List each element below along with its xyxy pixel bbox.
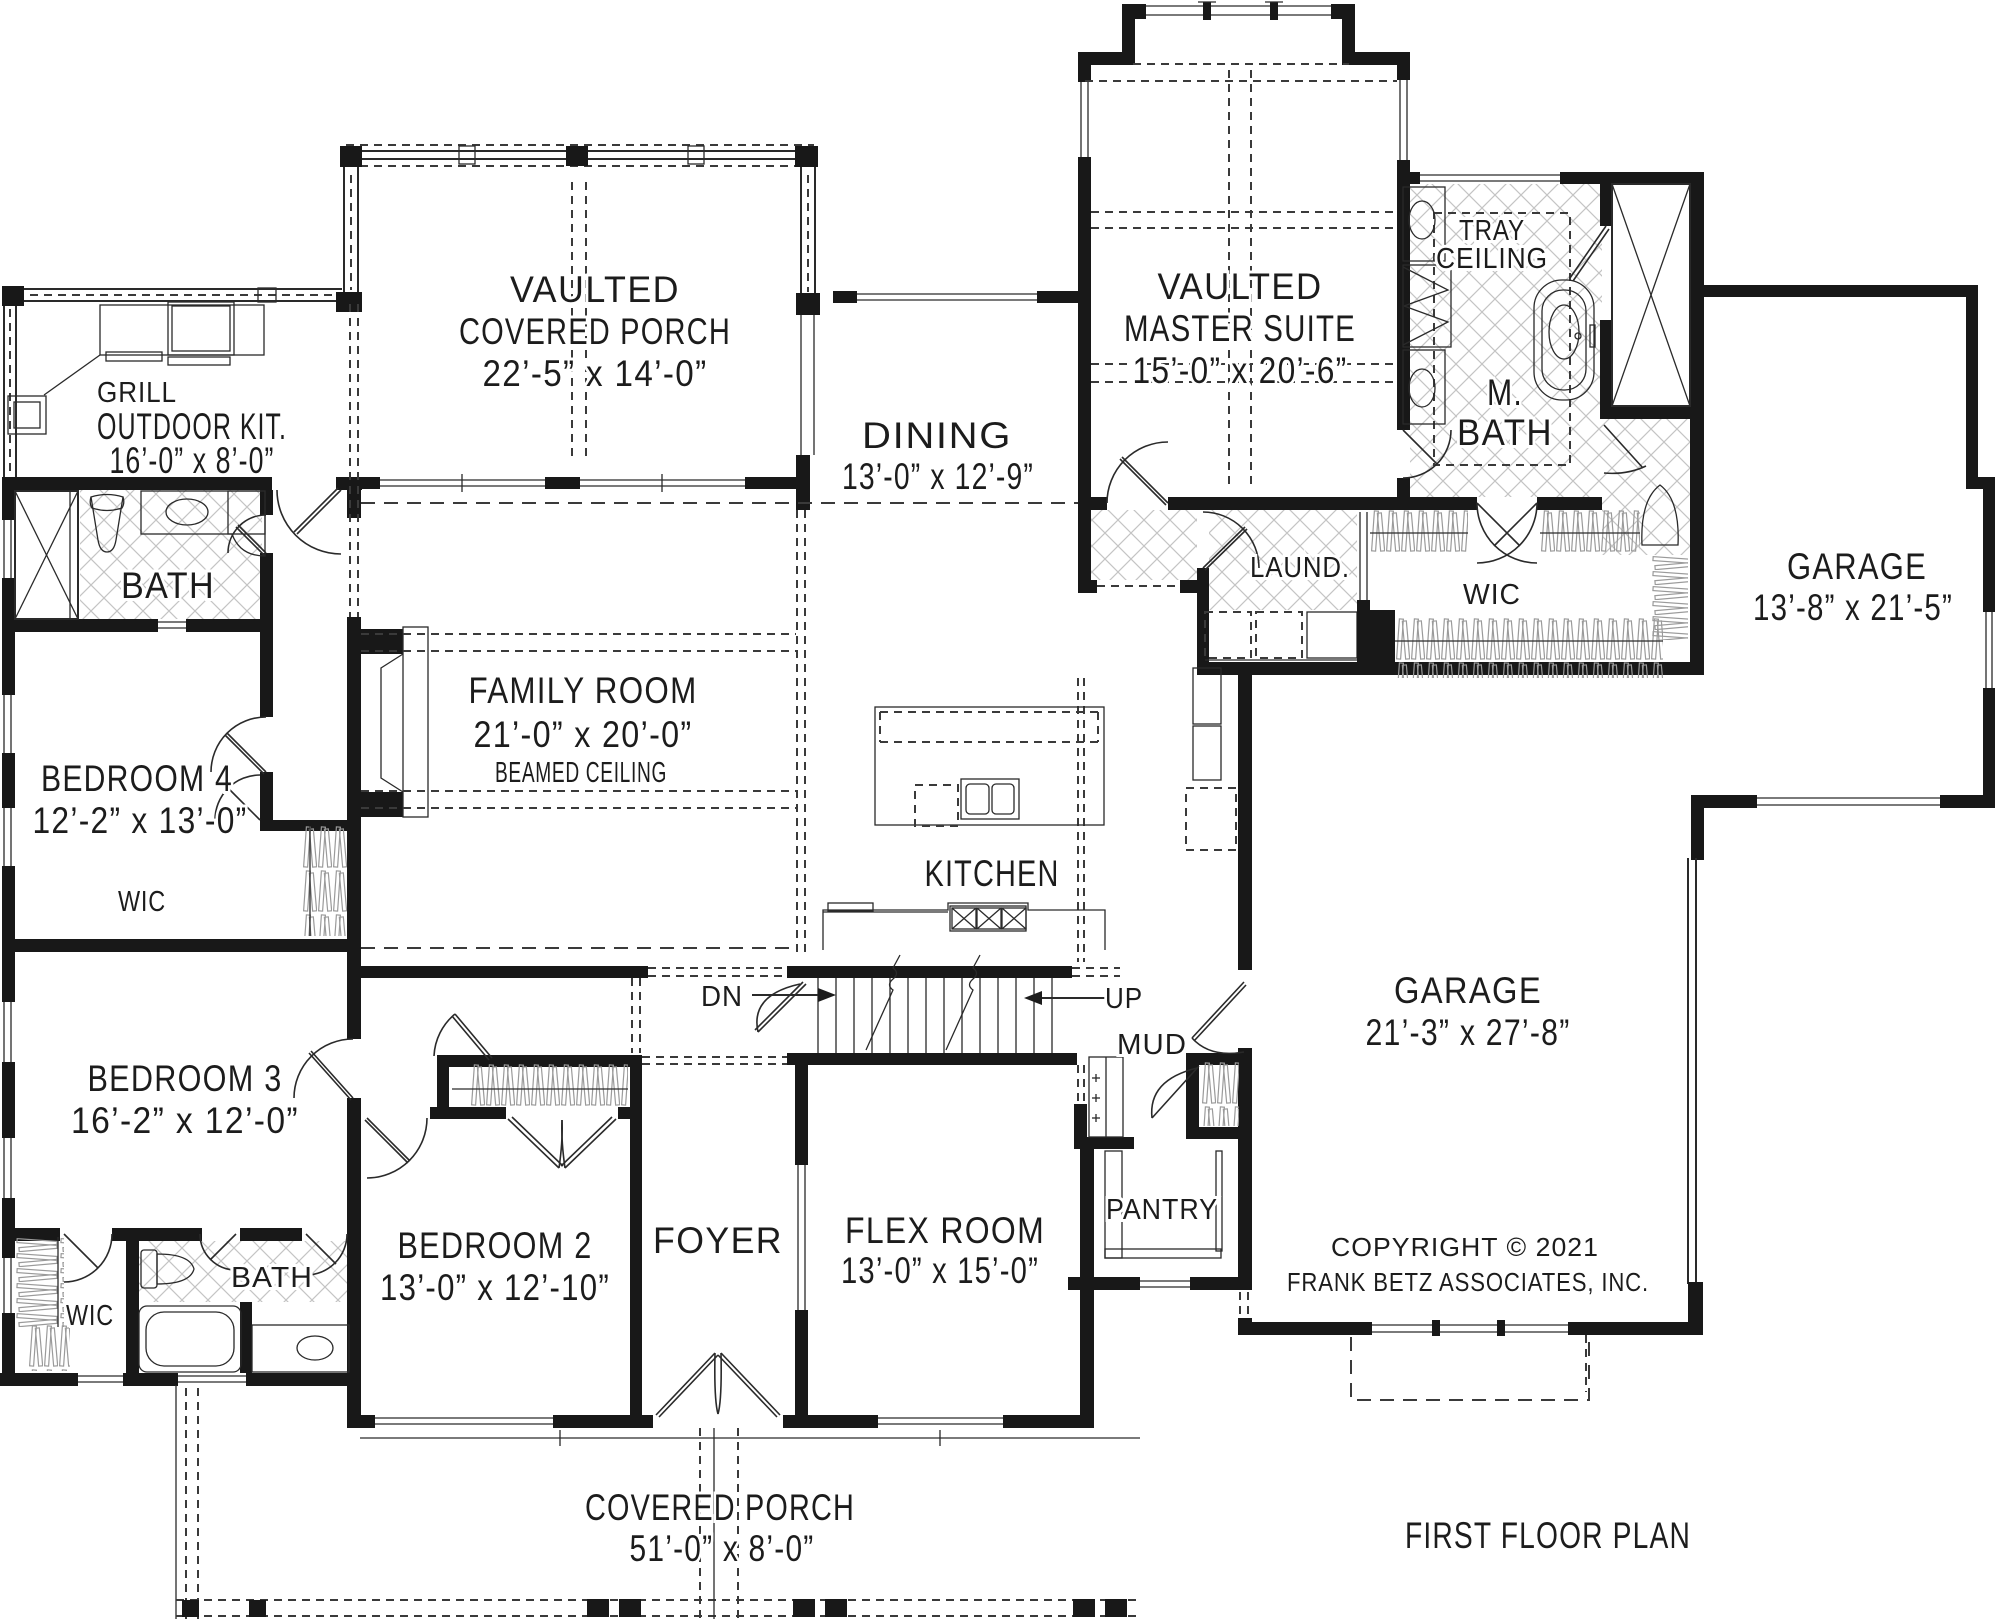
svg-text:BEDROOM 4: BEDROOM 4 <box>41 758 233 799</box>
svg-text:CEILING: CEILING <box>1436 243 1548 275</box>
svg-text:KITCHEN: KITCHEN <box>925 853 1060 894</box>
svg-text:VAULTED: VAULTED <box>510 269 680 310</box>
svg-text:16’-2” x 12’-0”: 16’-2” x 12’-0” <box>71 1100 299 1141</box>
svg-text:DINING: DINING <box>862 415 1012 456</box>
svg-text:51’-0” x 8’-0”: 51’-0” x 8’-0” <box>630 1528 815 1569</box>
svg-text:FAMILY ROOM: FAMILY ROOM <box>469 670 698 711</box>
svg-text:COVERED PORCH: COVERED PORCH <box>585 1487 855 1528</box>
svg-text:COVERED PORCH: COVERED PORCH <box>459 311 731 352</box>
svg-text:BATH: BATH <box>121 565 215 606</box>
svg-text:21’-0” x 20’-0”: 21’-0” x 20’-0” <box>474 714 693 755</box>
svg-text:12’-2” x 13’-0”: 12’-2” x 13’-0” <box>33 800 248 841</box>
svg-text:BEDROOM 3: BEDROOM 3 <box>88 1058 283 1099</box>
svg-text:LAUND.: LAUND. <box>1250 552 1350 584</box>
svg-text:15’-0” x 20’-6”: 15’-0” x 20’-6” <box>1133 350 1348 391</box>
svg-text:WIC: WIC <box>118 886 166 918</box>
svg-text:BATH: BATH <box>1457 412 1553 453</box>
svg-text:GRILL: GRILL <box>97 377 177 409</box>
svg-text:PANTRY: PANTRY <box>1106 1194 1218 1226</box>
svg-text:13’-0” x 15’-0”: 13’-0” x 15’-0” <box>841 1250 1039 1291</box>
svg-text:21’-3” x 27’-8”: 21’-3” x 27’-8” <box>1366 1012 1571 1053</box>
svg-text:FOYER: FOYER <box>653 1220 783 1261</box>
svg-text:BEAMED CEILING: BEAMED CEILING <box>495 757 667 789</box>
svg-text:M.: M. <box>1487 372 1523 413</box>
svg-text:UP: UP <box>1105 983 1143 1015</box>
svg-text:WIC: WIC <box>1463 579 1521 611</box>
svg-text:13’-0” x 12’-9”: 13’-0” x 12’-9” <box>842 456 1034 497</box>
svg-text:FLEX ROOM: FLEX ROOM <box>845 1210 1045 1251</box>
svg-text:16’-0” x 8’-0”: 16’-0” x 8’-0” <box>110 440 275 481</box>
svg-text:13’-8” x 21’-5”: 13’-8” x 21’-5” <box>1753 587 1953 628</box>
svg-text:BATH: BATH <box>231 1262 313 1294</box>
svg-text:GARAGE: GARAGE <box>1787 546 1927 587</box>
svg-text:WIC: WIC <box>66 1300 114 1332</box>
svg-text:MUD: MUD <box>1117 1029 1187 1061</box>
svg-text:COPYRIGHT © 2021: COPYRIGHT © 2021 <box>1331 1232 1599 1262</box>
svg-text:22’-5” x 14’-0”: 22’-5” x 14’-0” <box>483 353 708 394</box>
svg-text:DN: DN <box>701 981 743 1013</box>
svg-text:13’-0” x 12’-10”: 13’-0” x 12’-10” <box>380 1267 610 1308</box>
svg-text:BEDROOM 2: BEDROOM 2 <box>398 1225 593 1266</box>
svg-text:VAULTED: VAULTED <box>1158 266 1323 307</box>
svg-text:FIRST FLOOR PLAN: FIRST FLOOR PLAN <box>1405 1515 1691 1556</box>
svg-text:GARAGE: GARAGE <box>1394 970 1542 1011</box>
svg-text:FRANK BETZ ASSOCIATES, INC.: FRANK BETZ ASSOCIATES, INC. <box>1287 1267 1649 1297</box>
svg-text:MASTER SUITE: MASTER SUITE <box>1124 308 1356 349</box>
